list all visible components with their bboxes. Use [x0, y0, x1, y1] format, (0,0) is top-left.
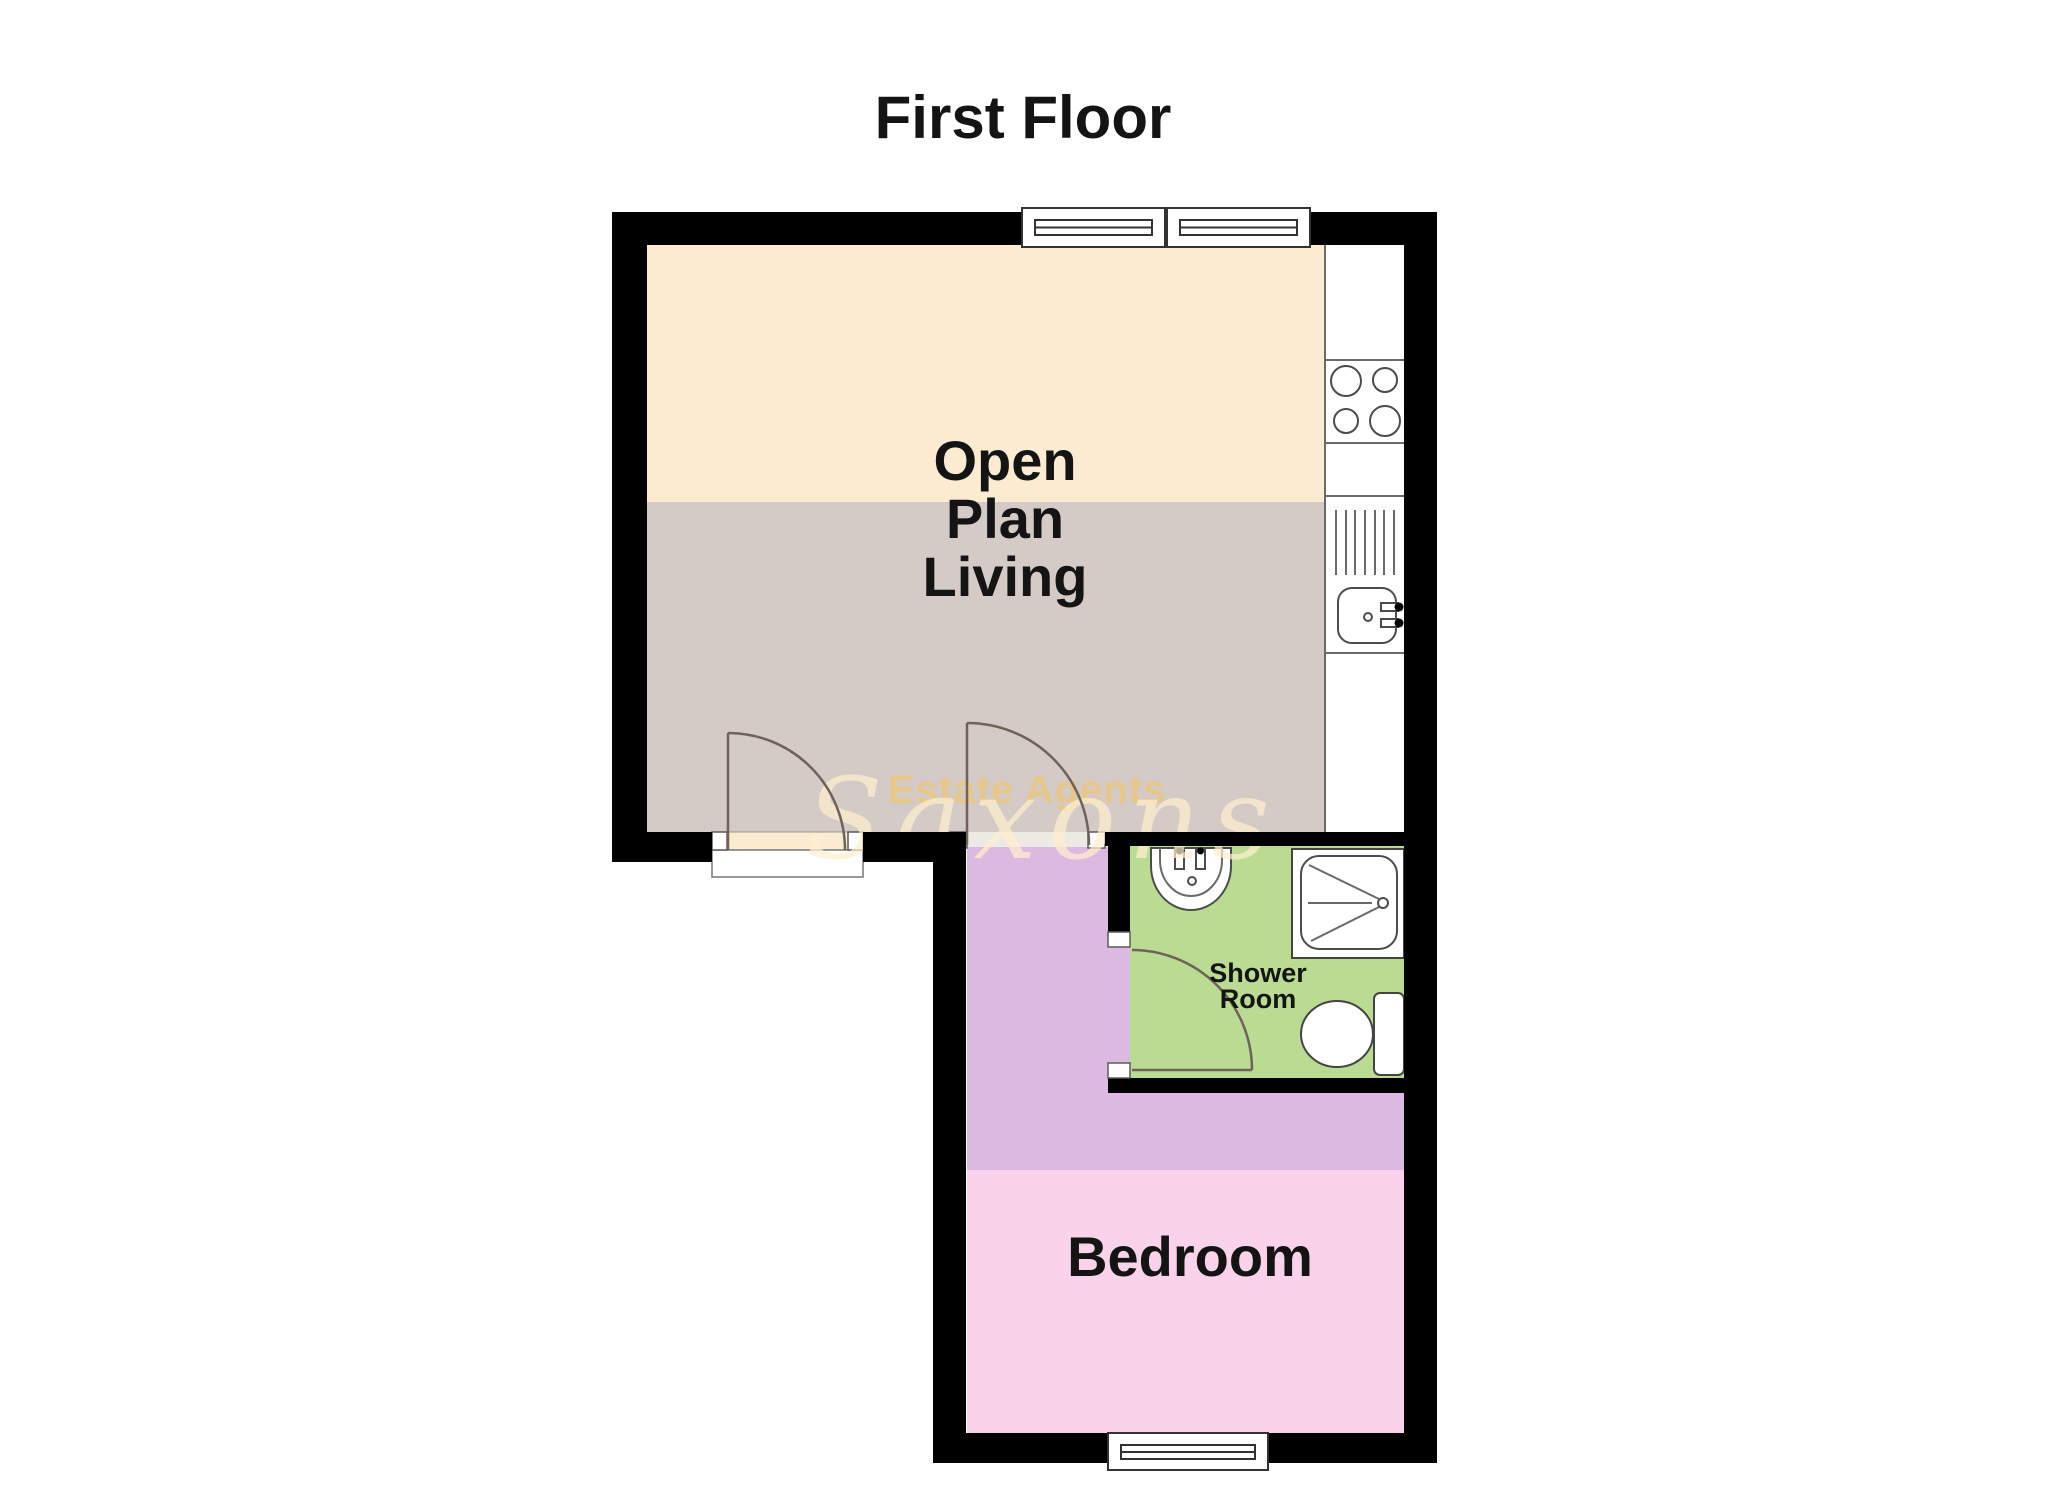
window-top-right-icon [1167, 208, 1310, 247]
door-jamb [1108, 932, 1130, 947]
room-label-open-plan-1: Open [933, 429, 1076, 492]
window-top-left-icon [1022, 208, 1165, 247]
door-jamb [712, 832, 727, 850]
bedroom-floor [967, 1170, 1404, 1433]
wall-hall-left [933, 832, 966, 1463]
window-bedroom-icon [1108, 1433, 1268, 1470]
room-label-open-plan-3: Living [923, 545, 1088, 608]
wall-shower-left [1108, 846, 1130, 932]
room-label-bedroom: Bedroom [1067, 1225, 1313, 1288]
wall-left [612, 212, 647, 862]
watermark-brand: Saxons [806, 755, 1282, 885]
floorplan-page: Estate Agents Saxons [0, 0, 2048, 1489]
wall-shower-top [1105, 832, 1404, 846]
floorplan-canvas: Estate Agents Saxons [0, 0, 2048, 1489]
room-label-shower-2: Room [1220, 984, 1297, 1014]
wall-right [1404, 212, 1437, 1463]
shower-tray-icon [1292, 849, 1404, 958]
wall-top-left [612, 212, 1022, 245]
hallway-floor-lower [967, 1093, 1404, 1170]
page-title: First Floor [875, 84, 1172, 151]
kitchen-sink-icon [1338, 588, 1404, 643]
door-jamb [1108, 1063, 1130, 1078]
room-label-open-plan-2: Plan [946, 487, 1064, 550]
wall-living-bottom-left [612, 832, 712, 862]
wall-shower-bottom [1108, 1078, 1404, 1093]
watermark: Estate Agents Saxons [806, 755, 1282, 885]
